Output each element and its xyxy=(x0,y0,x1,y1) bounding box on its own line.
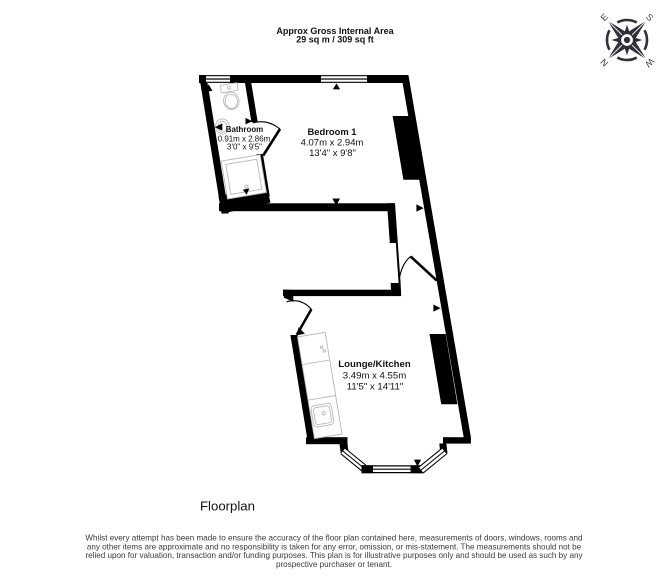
svg-text:3'0" x 9'5": 3'0" x 9'5" xyxy=(227,142,262,151)
svg-text:3.49m x 4.55m: 3.49m x 4.55m xyxy=(343,370,406,381)
svg-text:prospective purchaser or tenan: prospective purchaser or tenant. xyxy=(276,560,392,569)
svg-text:any other items are approximat: any other items are approximate and no r… xyxy=(87,542,582,551)
svg-text:Bathroom: Bathroom xyxy=(226,125,263,134)
svg-text:Floorplan: Floorplan xyxy=(200,499,255,514)
svg-text:Lounge/Kitchen: Lounge/Kitchen xyxy=(338,359,411,370)
svg-text:relied upon for valuation, tra: relied upon for valuation, transaction a… xyxy=(85,551,583,560)
svg-text:Whilst every attempt has been: Whilst every attempt has been made to en… xyxy=(85,533,582,542)
svg-text:29 sq m / 309 sq ft: 29 sq m / 309 sq ft xyxy=(296,35,374,45)
svg-text:Bedroom 1: Bedroom 1 xyxy=(308,126,357,137)
svg-text:11'5" x 14'11": 11'5" x 14'11" xyxy=(347,382,404,393)
svg-text:13'4" x 9'8": 13'4" x 9'8" xyxy=(309,148,356,159)
